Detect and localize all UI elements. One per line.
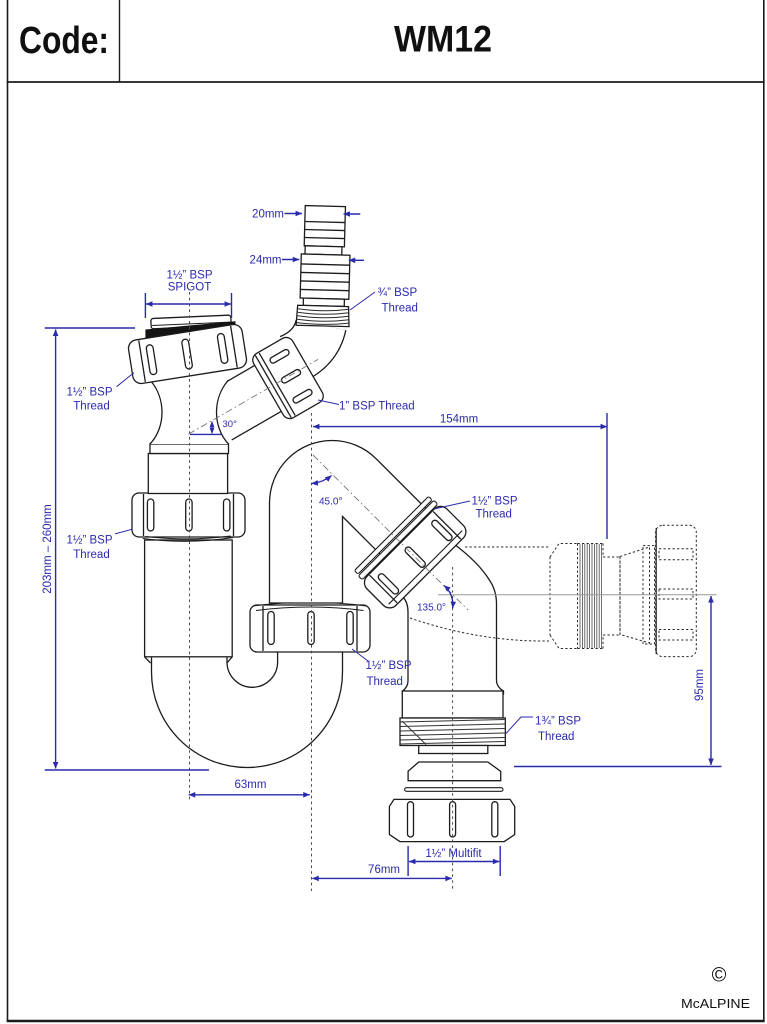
svg-text:1½” Multifit: 1½” Multifit bbox=[425, 848, 482, 860]
svg-text:24mm: 24mm bbox=[250, 255, 282, 267]
svg-text:SPIGOT: SPIGOT bbox=[168, 282, 211, 294]
svg-text:Thread: Thread bbox=[73, 401, 109, 413]
svg-text:1½” BSP: 1½” BSP bbox=[66, 535, 112, 547]
svg-text:76mm: 76mm bbox=[368, 864, 400, 876]
svg-text:30°: 30° bbox=[223, 419, 238, 430]
svg-text:1” BSP Thread: 1” BSP Thread bbox=[339, 401, 415, 413]
svg-text:Thread: Thread bbox=[538, 731, 574, 743]
svg-text:WM12: WM12 bbox=[394, 19, 492, 60]
svg-text:©: © bbox=[712, 965, 727, 987]
svg-text:¾” BSP: ¾” BSP bbox=[378, 287, 418, 299]
svg-text:1½” BSP: 1½” BSP bbox=[472, 496, 518, 508]
svg-text:45.0°: 45.0° bbox=[319, 497, 342, 508]
svg-text:McALPINE: McALPINE bbox=[681, 997, 750, 1011]
svg-text:20mm: 20mm bbox=[252, 209, 284, 221]
svg-text:Thread: Thread bbox=[367, 676, 403, 688]
svg-text:1½” BSP: 1½” BSP bbox=[66, 387, 112, 399]
svg-text:135.0°: 135.0° bbox=[417, 603, 446, 614]
svg-text:Thread: Thread bbox=[73, 549, 109, 561]
svg-text:63mm: 63mm bbox=[235, 779, 267, 791]
svg-text:1½” BSP: 1½” BSP bbox=[366, 660, 412, 672]
svg-text:Thread: Thread bbox=[382, 303, 418, 315]
svg-text:Thread: Thread bbox=[476, 509, 512, 521]
svg-text:1½” BSP: 1½” BSP bbox=[166, 270, 212, 282]
svg-text:203mm – 260mm: 203mm – 260mm bbox=[42, 504, 54, 593]
svg-text:154mm: 154mm bbox=[440, 414, 478, 426]
svg-text:Code:: Code: bbox=[19, 20, 109, 62]
svg-text:95mm: 95mm bbox=[694, 669, 706, 701]
svg-text:1¾” BSP: 1¾” BSP bbox=[535, 716, 581, 728]
